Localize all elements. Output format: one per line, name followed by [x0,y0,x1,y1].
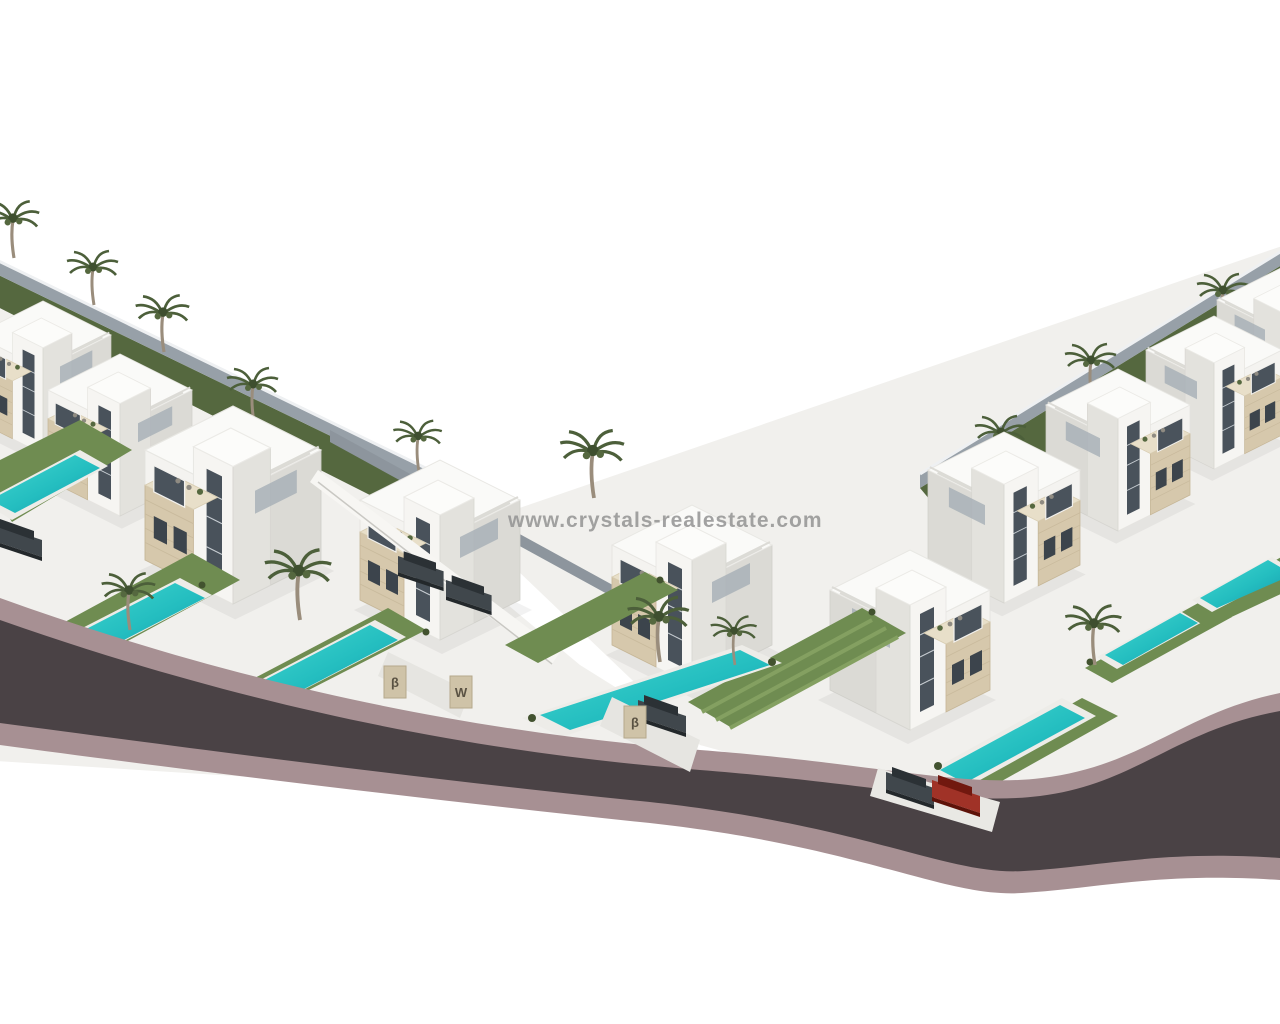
gate-pillar-3-label: β [631,715,639,730]
gate-pillar-2-label: W [455,685,468,700]
gate-pillar-3: β [624,706,646,738]
gate-pillar-1: β [384,666,406,698]
palm-tree [0,201,39,258]
watermark-text: www.crystals-realestate.com [507,509,823,532]
gate-pillar-2: W [450,676,472,708]
villa-development-render: β W β www.crystals-realestate.com [0,0,1280,1024]
gate-pillar-1-label: β [391,675,399,690]
render-canvas: β W β www.crystals-realestate.com [0,0,1280,1024]
